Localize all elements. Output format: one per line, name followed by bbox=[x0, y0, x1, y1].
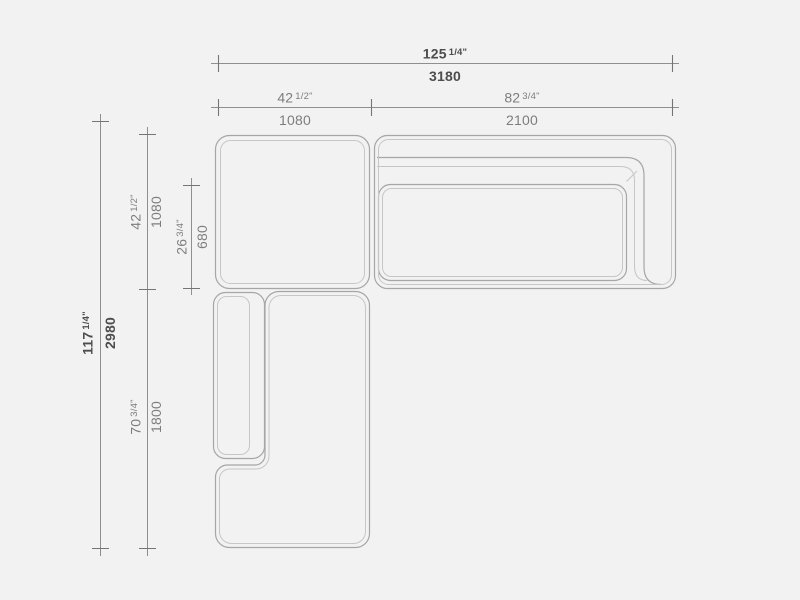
dim-chaise-length-inches: 703/4" bbox=[127, 357, 143, 477]
sofa-seat-cushion-outline bbox=[379, 185, 627, 281]
dim-left-module-depth-inches: 421/2" bbox=[127, 152, 143, 272]
dim-seat-depth-inches: 263/4" bbox=[173, 177, 189, 297]
corner-module-outline bbox=[216, 136, 370, 289]
chaise-armrest-inner-line bbox=[218, 297, 250, 455]
dim-left-module-width-mm: 1080 bbox=[235, 112, 355, 128]
furniture-inner-lines bbox=[218, 140, 672, 544]
dim-total-width-mm: 3180 bbox=[385, 68, 505, 84]
sofa-seat-cushion-inner-line bbox=[383, 189, 623, 277]
corner-module-inner-line bbox=[221, 141, 365, 284]
dim-chaise-length-mm: 1800 bbox=[148, 357, 164, 477]
dimension-ticks bbox=[92, 55, 673, 549]
chaise-armrest-outline bbox=[214, 293, 265, 459]
dim-right-module-width-inches: 823/4" bbox=[462, 89, 582, 105]
dim-left-module-depth-mm: 1080 bbox=[148, 152, 164, 272]
dim-seat-depth-mm: 680 bbox=[194, 177, 210, 297]
furniture-outlines bbox=[214, 136, 676, 548]
sofa-module-inner-line bbox=[379, 140, 672, 285]
dim-total-width-inches: 1251/4" bbox=[385, 45, 505, 61]
sofa-backrest-armrest-inner-edge bbox=[377, 158, 661, 285]
dimension-drawing: 1251/4" 3180 421/2" 1080 823/4" 2100 117… bbox=[0, 0, 800, 600]
sofa-corner-miter-line bbox=[627, 171, 638, 182]
dim-left-module-width-inches: 421/2" bbox=[235, 89, 355, 105]
sofa-plan-svg bbox=[0, 0, 800, 600]
dim-right-module-width-mm: 2100 bbox=[462, 112, 582, 128]
chaise-seat-outline bbox=[216, 292, 370, 548]
dimension-lines bbox=[101, 64, 680, 557]
sofa-module-outline bbox=[375, 136, 676, 289]
dim-total-depth-mm: 2980 bbox=[102, 273, 118, 393]
chaise-seat-inner-line bbox=[220, 296, 366, 544]
sofa-backrest-cushion-edge bbox=[377, 167, 647, 281]
dim-total-depth-inches: 1171/4" bbox=[79, 273, 95, 393]
